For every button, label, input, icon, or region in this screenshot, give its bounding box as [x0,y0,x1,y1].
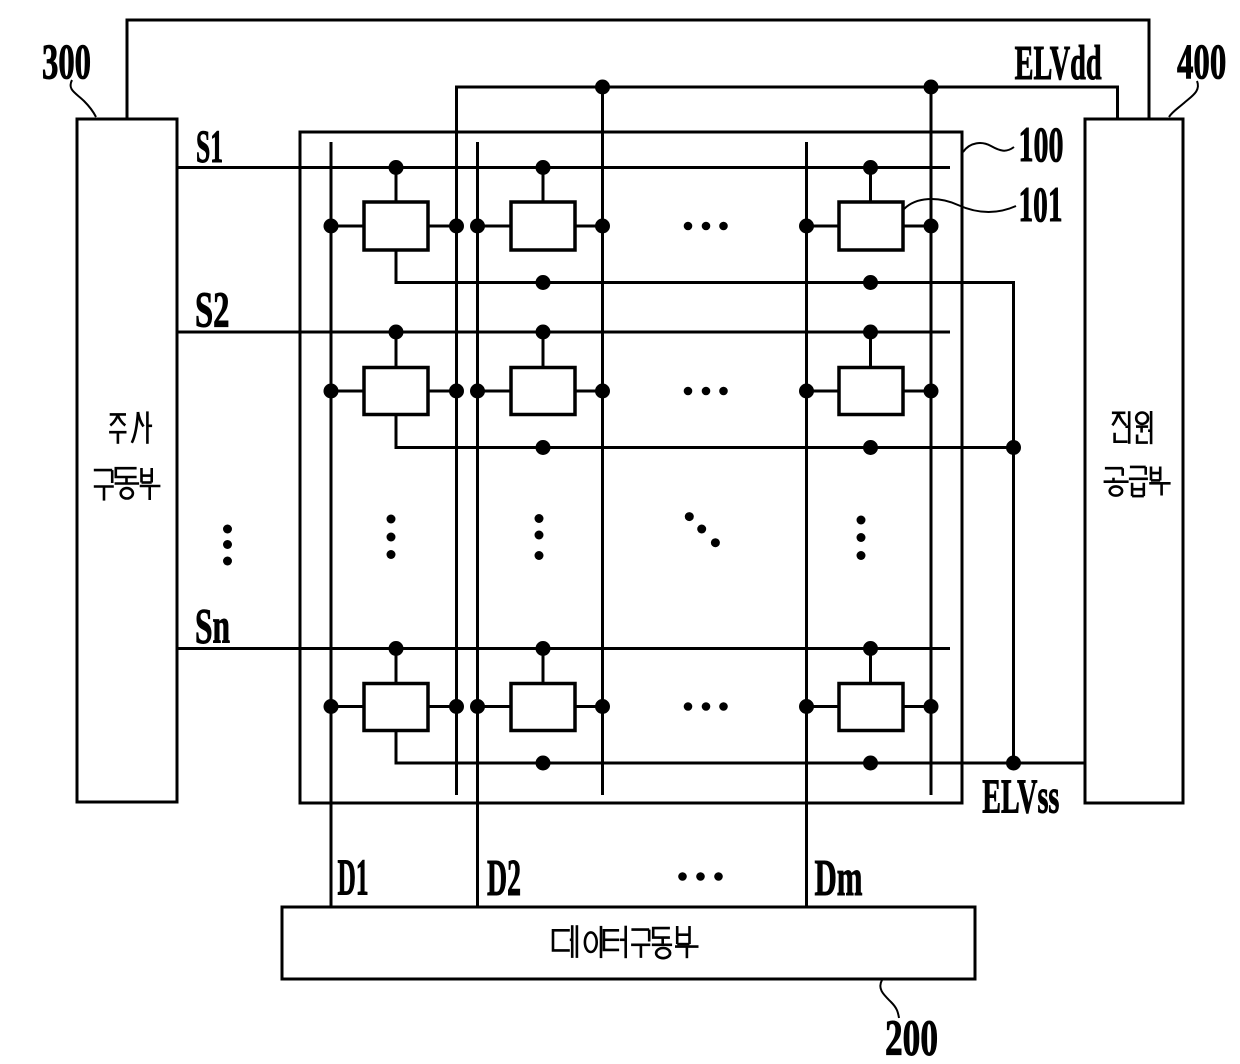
svg-text:Sn: Sn [195,598,230,654]
svg-text:D1: D1 [338,850,369,907]
svg-text:ELVdd: ELVdd [1015,35,1102,90]
svg-text:ELVss: ELVss [982,768,1059,823]
svg-text:400: 400 [1177,33,1226,89]
svg-text:S2: S2 [195,283,230,339]
svg-text:200: 200 [885,1011,938,1064]
svg-text:D2: D2 [487,850,521,907]
svg-text:S1: S1 [196,121,223,173]
svg-text:101: 101 [1019,176,1063,232]
svg-text:Dm: Dm [815,850,863,907]
svg-text:300: 300 [42,33,91,89]
svg-text:100: 100 [1019,116,1064,172]
